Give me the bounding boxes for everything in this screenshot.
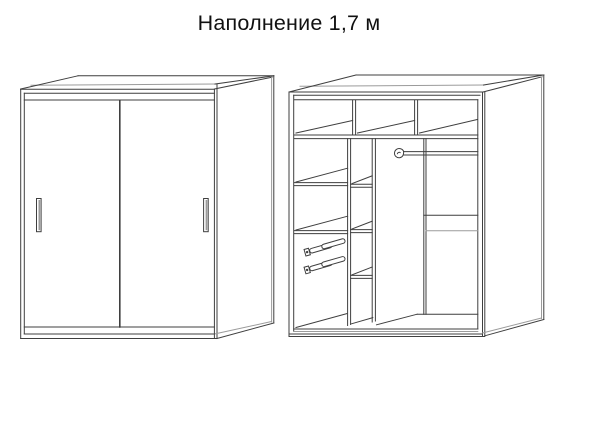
- closed-wardrobe-view: [21, 76, 274, 339]
- rod-bracket: [395, 148, 404, 157]
- upper-compartment-divider-2: [415, 100, 418, 135]
- left-sliding-door: [37, 199, 42, 232]
- hanging-rod: [395, 148, 478, 157]
- narrow-shelf-3: [351, 267, 373, 278]
- right-shelf: [424, 215, 478, 231]
- right-divider: [424, 139, 426, 315]
- drawer-slide-2: [304, 256, 346, 274]
- top-shelf: [294, 120, 478, 139]
- cabinet-floor: [289, 314, 485, 337]
- left-door-handle: [37, 199, 42, 232]
- wardrobe-diagram: [0, 0, 600, 422]
- cabinet-top: [289, 75, 544, 100]
- narrow-shelf-1: [351, 176, 373, 187]
- right-door-handle: [204, 199, 209, 232]
- side-panel: [214, 76, 273, 339]
- narrow-shelf-2: [351, 221, 373, 232]
- middle-partition: [372, 139, 375, 322]
- upper-compartment-divider-1: [353, 100, 356, 135]
- drawer-slide-1: [304, 238, 346, 256]
- cabinet-left-edge: [21, 89, 25, 338]
- side-panel: [483, 75, 544, 336]
- cabinet-left-edge: [289, 92, 294, 337]
- cabinet-top: [21, 76, 274, 100]
- base-plinth: [21, 327, 217, 339]
- left-shelf-1: [294, 168, 348, 185]
- interior-view: [289, 75, 544, 337]
- right-sliding-door: [204, 199, 209, 232]
- diagram-canvas: Наполнение 1,7 м: [0, 0, 600, 422]
- left-shelf-2: [294, 216, 348, 233]
- left-partition: [348, 139, 351, 326]
